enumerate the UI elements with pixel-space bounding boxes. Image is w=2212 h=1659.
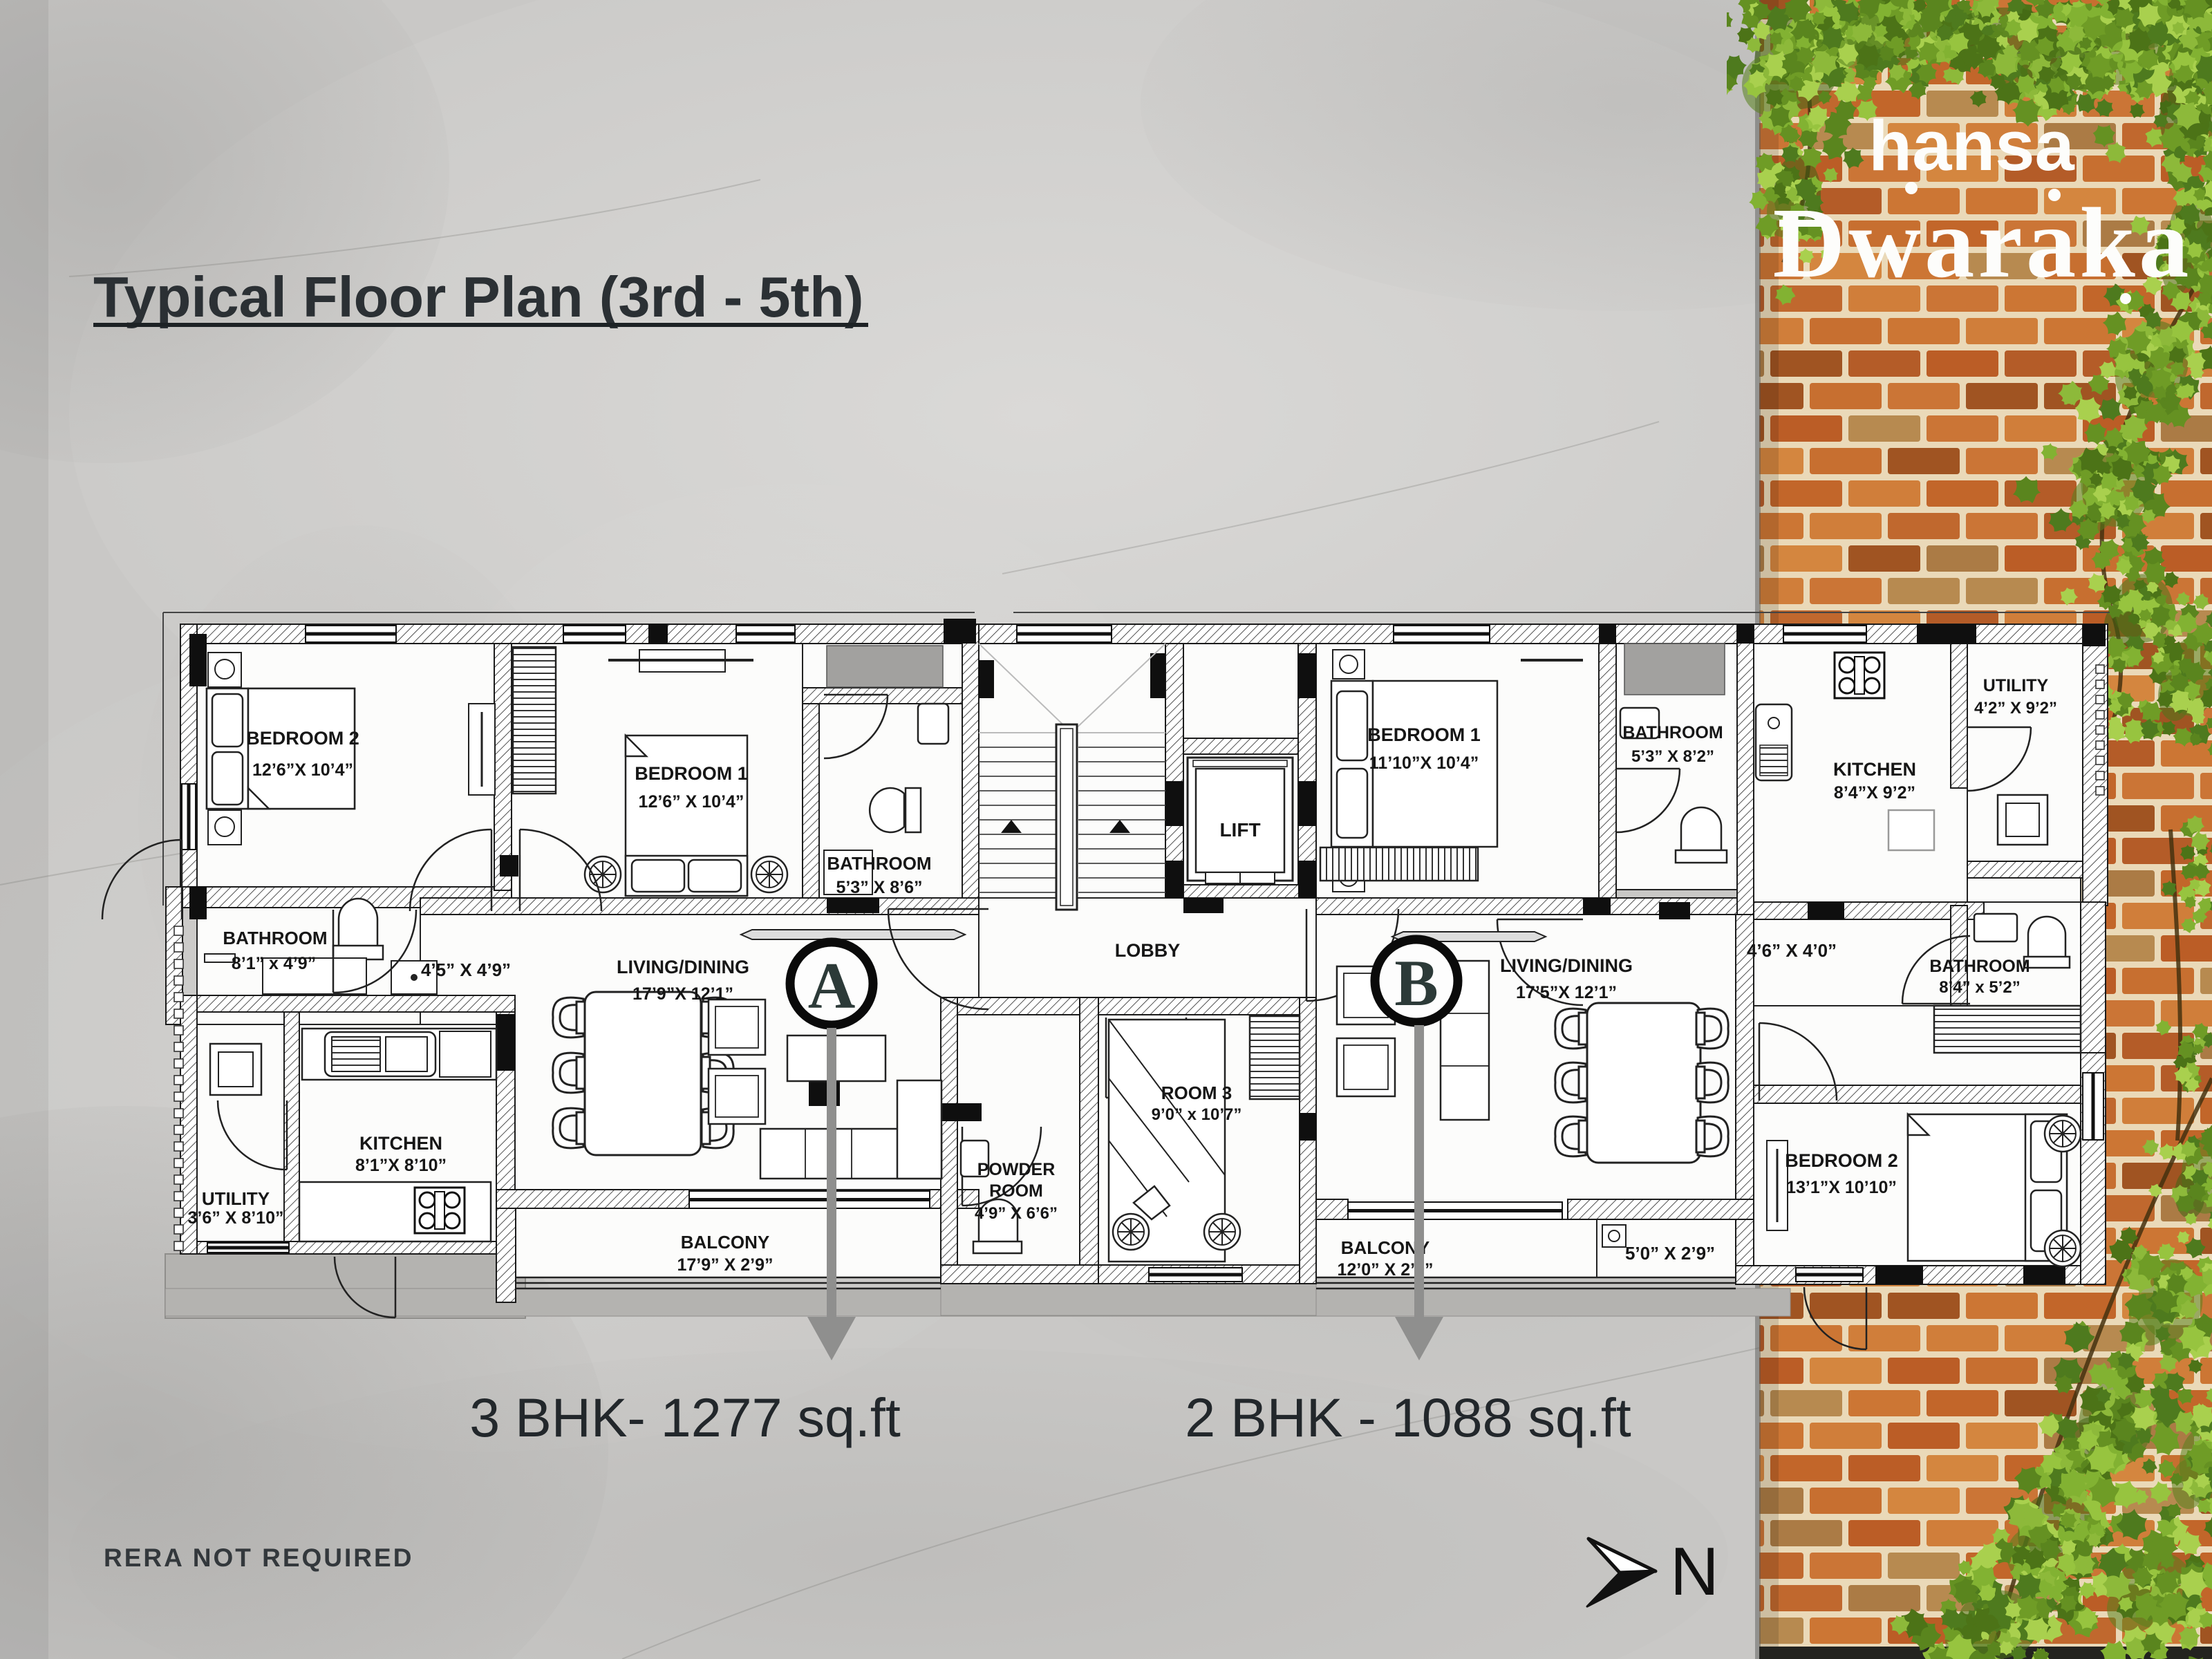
svg-text:8’1”X 8’10”: 8’1”X 8’10” bbox=[355, 1156, 447, 1175]
svg-text:5’3” X 8’6”: 5’3” X 8’6” bbox=[836, 878, 922, 897]
svg-text:LIVING/DINING: LIVING/DINING bbox=[617, 957, 749, 977]
svg-text:13’1”X 10’10”: 13’1”X 10’10” bbox=[1786, 1178, 1897, 1197]
svg-text:BALCONY: BALCONY bbox=[681, 1232, 770, 1253]
svg-text:A: A bbox=[808, 949, 856, 1022]
svg-text:BEDROOM 1: BEDROOM 1 bbox=[1367, 724, 1481, 745]
svg-text:KITCHEN: KITCHEN bbox=[359, 1133, 442, 1154]
svg-text:5’0” X 2’9”: 5’0” X 2’9” bbox=[1625, 1243, 1715, 1264]
svg-text:LIVING/DINING: LIVING/DINING bbox=[1500, 955, 1633, 976]
svg-text:Dwaraka: Dwaraka bbox=[1773, 188, 2193, 299]
svg-text:BEDROOM 2: BEDROOM 2 bbox=[1785, 1150, 1898, 1171]
svg-text:4’9” X 6’6”: 4’9” X 6’6” bbox=[975, 1204, 1058, 1223]
svg-text:UTILITY: UTILITY bbox=[1983, 676, 2049, 695]
svg-text:UTILITY: UTILITY bbox=[202, 1188, 270, 1209]
svg-text:LIFT: LIFT bbox=[1219, 819, 1260, 841]
svg-text:4’6” X 4’0”: 4’6” X 4’0” bbox=[1747, 940, 1837, 961]
svg-text:8’4”X 9’2”: 8’4”X 9’2” bbox=[1834, 783, 1915, 803]
svg-text:N: N bbox=[1670, 1533, 1719, 1609]
svg-text:3’6” X 8’10”: 3’6” X 8’10” bbox=[188, 1208, 284, 1228]
svg-text:12’6”X 10’4”: 12’6”X 10’4” bbox=[252, 760, 353, 780]
svg-text:RERA NOT REQUIRED: RERA NOT REQUIRED bbox=[104, 1544, 413, 1572]
svg-text:4’5” X 4’9”: 4’5” X 4’9” bbox=[421, 959, 511, 980]
svg-text:12’6” X 10’4”: 12’6” X 10’4” bbox=[639, 792, 744, 812]
svg-text:BEDROOM 1: BEDROOM 1 bbox=[635, 763, 748, 784]
svg-text:BATHROOM: BATHROOM bbox=[1622, 723, 1723, 742]
svg-text:17’5”X 12’1”: 17’5”X 12’1” bbox=[1516, 983, 1617, 1002]
svg-text:Typical Floor Plan (3rd - 5th): Typical Floor Plan (3rd - 5th) bbox=[93, 265, 863, 329]
svg-text:KITCHEN: KITCHEN bbox=[1833, 759, 1916, 780]
svg-text:BATHROOM: BATHROOM bbox=[1929, 957, 2030, 976]
svg-text:9’0” x 10’7”: 9’0” x 10’7” bbox=[1152, 1105, 1242, 1124]
svg-text:17’9” X 2’9”: 17’9” X 2’9” bbox=[677, 1255, 774, 1275]
svg-text:B: B bbox=[1394, 946, 1438, 1020]
svg-text:BATHROOM: BATHROOM bbox=[827, 853, 931, 874]
svg-text:2 BHK - 1088 sq.ft: 2 BHK - 1088 sq.ft bbox=[1185, 1387, 1631, 1448]
svg-text:BATHROOM: BATHROOM bbox=[223, 928, 327, 948]
svg-text:17’9”X 12’1”: 17’9”X 12’1” bbox=[632, 984, 733, 1004]
svg-text:8’4” x 5’2”: 8’4” x 5’2” bbox=[1939, 978, 2020, 997]
svg-text:ROOM 3: ROOM 3 bbox=[1161, 1082, 1232, 1103]
svg-text:8’1” x 4’9”: 8’1” x 4’9” bbox=[232, 954, 316, 973]
svg-text:ROOM: ROOM bbox=[989, 1181, 1043, 1201]
svg-text:POWDER: POWDER bbox=[977, 1160, 1056, 1179]
svg-text:3 BHK- 1277 sq.ft: 3 BHK- 1277 sq.ft bbox=[469, 1387, 901, 1448]
svg-text:LOBBY: LOBBY bbox=[1115, 940, 1181, 961]
svg-text:hansa: hansa bbox=[1868, 106, 2074, 185]
svg-text:4’2” X 9’2”: 4’2” X 9’2” bbox=[1974, 699, 2057, 718]
svg-text:BEDROOM 2: BEDROOM 2 bbox=[246, 728, 359, 749]
svg-text:5’3” X 8’2”: 5’3” X 8’2” bbox=[1631, 747, 1714, 766]
svg-text:11’10”X 10’4”: 11’10”X 10’4” bbox=[1369, 753, 1479, 773]
